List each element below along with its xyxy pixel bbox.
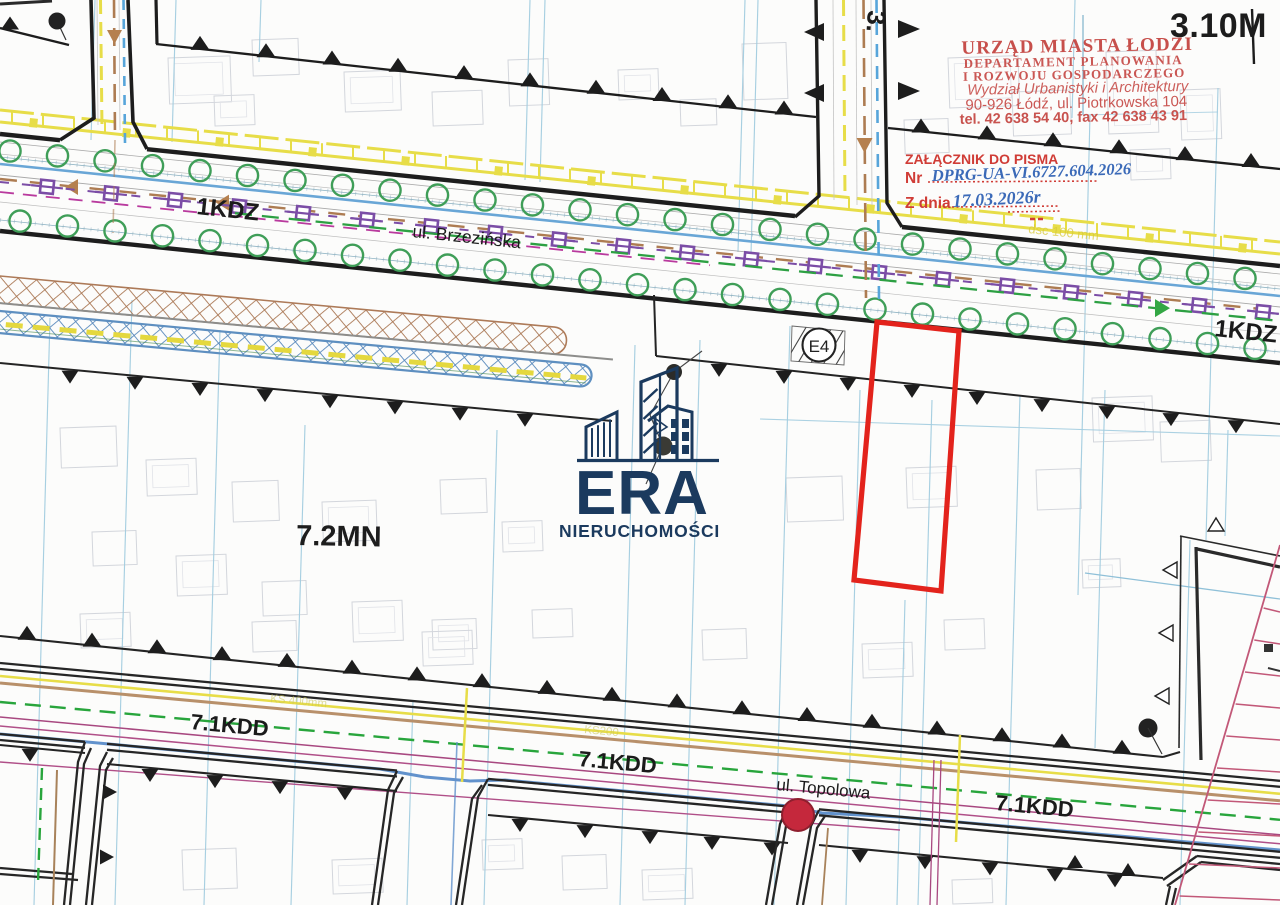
svg-text:Z dnia: Z dnia (905, 195, 951, 212)
svg-text:Nr: Nr (905, 170, 922, 187)
svg-text:E4: E4 (809, 337, 830, 356)
svg-text:NIERUCHOMOŚCI: NIERUCHOMOŚCI (559, 520, 720, 541)
svg-text:7.2MN: 7.2MN (296, 520, 382, 553)
svg-text:3.: 3. (861, 10, 892, 34)
svg-text:ERA: ERA (575, 459, 709, 528)
